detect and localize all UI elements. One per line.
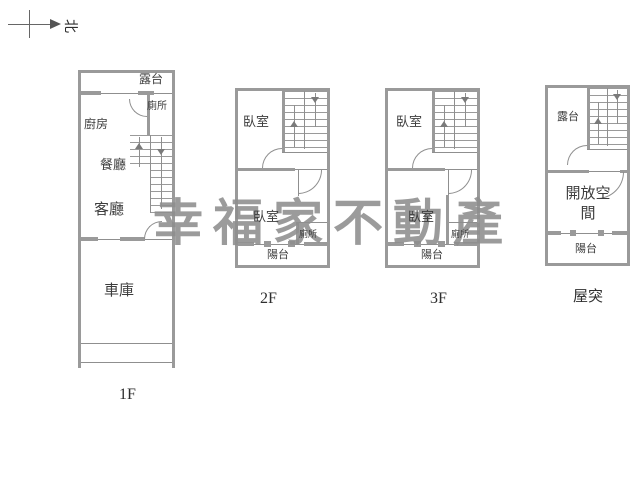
north-label: 北 [61,19,81,33]
staircase [285,91,327,153]
room-label-toilet-3f: 廁所 [451,229,469,240]
room-label-garage: 車庫 [104,282,134,300]
room-label-terrace-1f: 露台 [139,72,163,86]
window-marker [81,237,98,241]
wall-segment [587,149,627,150]
staircase [590,88,627,150]
room-label-kitchen: 廚房 [84,117,108,131]
door-arc [129,99,147,117]
floor-label-2f: 2F [260,290,277,308]
room-label-toilet-1f: 廁所 [147,101,167,113]
door-arc [262,148,282,168]
window-marker [81,91,101,95]
floor-label-3f: 3F [430,290,447,308]
door-arc [567,145,587,165]
staircase [435,91,477,153]
window-marker [138,91,154,95]
room-label-open-space: 開放空間 [562,184,614,224]
room-label-balcony-roof: 陽台 [575,243,597,256]
stair-arrow-icon [613,94,621,104]
room-label-dining: 餐廳 [100,157,126,173]
compass-cross-line [29,10,30,38]
stair-arrow-icon [461,97,469,107]
floorplan-unit-roof: 露台 開放空間 陽台 [545,85,630,266]
window-marker [120,237,145,241]
wall-segment [388,168,445,171]
garage-door-line [81,343,172,344]
floor-label-1f: 1F [119,386,136,404]
compass-arrowhead-icon [50,19,61,29]
wall-segment [298,170,299,196]
north-compass-icon: 北 [0,0,90,45]
stair-divider [304,91,305,149]
wall-segment [147,93,150,135]
stair-arrow-icon [157,149,165,159]
door-arc [412,148,432,168]
stair-arrow-icon [440,117,448,127]
room-label-bedroom-top-3f: 臥室 [396,114,422,130]
wall-segment [238,168,295,171]
wall-segment [432,152,477,153]
stair-arrow-icon [311,97,319,107]
wall-segment [448,170,449,196]
garage-door-line [81,362,172,363]
room-label-living: 客廳 [94,201,124,219]
room-label-bedroom-top-2f: 臥室 [243,114,269,130]
room-label-balcony-2f: 陽台 [267,249,289,262]
window-marker [548,231,561,235]
room-label-balcony-3f: 陽台 [421,249,443,262]
room-label-terrace-roof: 露台 [557,111,579,124]
agency-watermark: 幸福家不動產 [153,194,513,252]
wall-cap [172,357,175,368]
door-arc [298,170,322,194]
door-post [570,230,576,236]
wall-segment [282,152,327,153]
stair-arrow-icon [290,117,298,127]
stair-arrow-icon [135,139,143,149]
stair-divider [454,91,455,149]
wall-segment [548,170,589,173]
stair-divider [150,135,151,213]
door-post [598,230,604,236]
stair-divider [607,88,608,146]
floor-label-roof: 屋突 [573,285,603,306]
door-arc [448,170,472,194]
room-label-toilet-2f: 廁所 [299,229,317,240]
stair-arrow-icon [594,114,602,124]
floor-plan-canvas: { "compass": { "north_label": "北" }, "wa… [0,0,640,480]
window-marker [612,231,627,235]
room-label-bedroom-bottom-2f: 臥室 [253,209,279,225]
room-label-bedroom-bottom-3f: 臥室 [408,209,434,225]
wall-cap [78,357,81,368]
